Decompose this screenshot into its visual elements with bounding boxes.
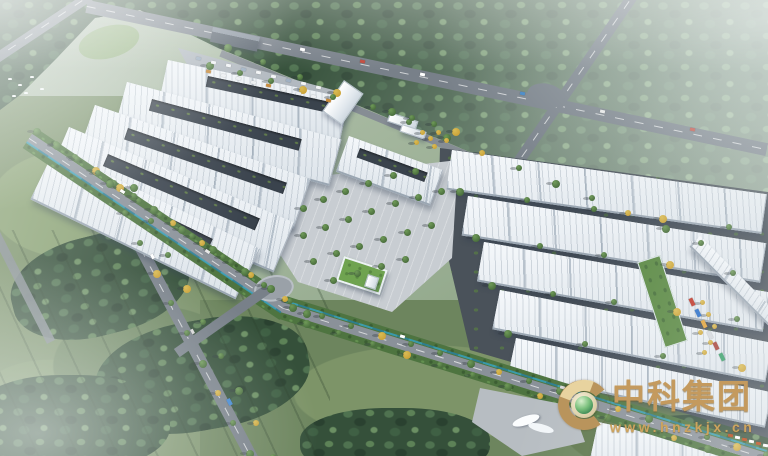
tree xyxy=(472,234,480,242)
tree xyxy=(524,197,530,203)
tree xyxy=(183,285,191,293)
tree xyxy=(165,252,171,258)
tree xyxy=(289,304,297,312)
tree xyxy=(178,226,186,234)
tree xyxy=(184,330,190,336)
tree xyxy=(378,332,386,340)
tree xyxy=(420,130,425,135)
tree xyxy=(300,232,307,239)
vehicle xyxy=(241,67,247,71)
tree xyxy=(437,362,443,368)
tree xyxy=(320,196,327,203)
tree xyxy=(130,184,138,192)
tree xyxy=(428,136,433,141)
vehicle xyxy=(296,91,302,95)
tree xyxy=(310,258,317,265)
tree xyxy=(246,450,254,456)
tree xyxy=(215,390,221,396)
tree xyxy=(673,308,681,316)
tree xyxy=(734,316,740,322)
tree xyxy=(235,387,243,395)
green-sphere-icon xyxy=(575,396,593,414)
tree xyxy=(404,229,411,236)
tree xyxy=(666,261,674,269)
tree xyxy=(438,188,445,195)
tree xyxy=(248,272,254,278)
bird xyxy=(24,92,28,94)
tree xyxy=(537,243,543,249)
tree xyxy=(601,252,607,258)
tree xyxy=(392,200,399,207)
tree xyxy=(153,270,161,278)
tree xyxy=(199,240,205,246)
website-url: www.hnzkjx.cn xyxy=(610,419,755,435)
vehicle xyxy=(316,85,322,89)
tree xyxy=(428,222,435,229)
tree xyxy=(659,215,667,223)
tree xyxy=(589,195,595,201)
bird xyxy=(40,88,44,90)
company-name: 中科集团 xyxy=(612,378,764,416)
tree xyxy=(148,218,154,224)
tree xyxy=(550,291,556,297)
vehicle xyxy=(211,60,217,64)
tree xyxy=(414,140,419,145)
tree xyxy=(356,243,363,250)
tree xyxy=(706,312,711,317)
tree xyxy=(370,341,376,347)
tree xyxy=(303,320,311,328)
tree xyxy=(253,420,259,426)
tree xyxy=(402,256,409,263)
tree xyxy=(488,282,496,290)
tree xyxy=(380,236,387,243)
tree xyxy=(368,208,375,215)
tree xyxy=(408,341,414,347)
tree xyxy=(409,115,415,121)
tree xyxy=(700,300,705,305)
tree xyxy=(388,108,396,116)
tree xyxy=(660,353,666,359)
tree xyxy=(189,233,195,239)
tree xyxy=(345,216,352,223)
tree xyxy=(552,180,560,188)
tree xyxy=(504,330,512,338)
vehicle xyxy=(326,98,332,102)
tree xyxy=(611,299,617,305)
tree xyxy=(591,206,597,212)
tree xyxy=(436,130,441,135)
tree xyxy=(209,246,217,254)
tree xyxy=(303,310,311,318)
tree xyxy=(319,313,325,319)
tree xyxy=(625,210,631,216)
vehicle xyxy=(221,73,227,77)
tree xyxy=(726,224,732,230)
tree xyxy=(479,150,485,156)
tree xyxy=(738,364,746,372)
tree xyxy=(330,277,337,284)
tree xyxy=(456,188,464,196)
tree xyxy=(200,319,206,325)
tree xyxy=(220,254,226,260)
tree xyxy=(698,330,703,335)
tree xyxy=(106,180,114,188)
tree xyxy=(95,170,101,176)
tree xyxy=(241,268,249,276)
tree xyxy=(412,168,419,175)
tree xyxy=(452,128,460,136)
tree xyxy=(348,323,354,329)
tree xyxy=(504,383,512,391)
bird xyxy=(12,95,16,97)
tree xyxy=(415,194,422,201)
tree xyxy=(526,378,532,384)
tree xyxy=(537,393,543,399)
tree xyxy=(333,250,340,257)
tree xyxy=(74,156,80,162)
tree xyxy=(378,263,385,270)
bird xyxy=(30,76,34,78)
tree xyxy=(224,44,232,52)
vehicle xyxy=(286,78,292,82)
watermark-logo: 中科集团 www.hnzkjx.cn xyxy=(550,376,765,448)
tree xyxy=(218,353,224,359)
tree xyxy=(432,144,437,149)
aerial-render-scene: 中科集团 www.hnzkjx.cn xyxy=(0,0,768,456)
tree xyxy=(702,350,707,355)
vehicle xyxy=(251,80,257,84)
tree xyxy=(53,142,61,150)
tree xyxy=(712,324,717,329)
tree xyxy=(170,220,176,226)
tree xyxy=(354,270,361,277)
tree xyxy=(33,128,41,136)
tree xyxy=(122,210,128,216)
tree xyxy=(730,270,736,276)
tree xyxy=(390,172,397,179)
tree xyxy=(698,240,704,246)
tree xyxy=(365,180,372,187)
tree xyxy=(467,360,475,368)
tree xyxy=(342,188,349,195)
tree xyxy=(431,121,437,127)
tree xyxy=(444,138,449,143)
tree xyxy=(662,225,670,233)
bird xyxy=(8,78,12,80)
tree xyxy=(763,452,768,456)
bird xyxy=(18,84,22,86)
tree xyxy=(322,224,329,231)
tree xyxy=(516,165,522,171)
tree xyxy=(300,205,307,212)
